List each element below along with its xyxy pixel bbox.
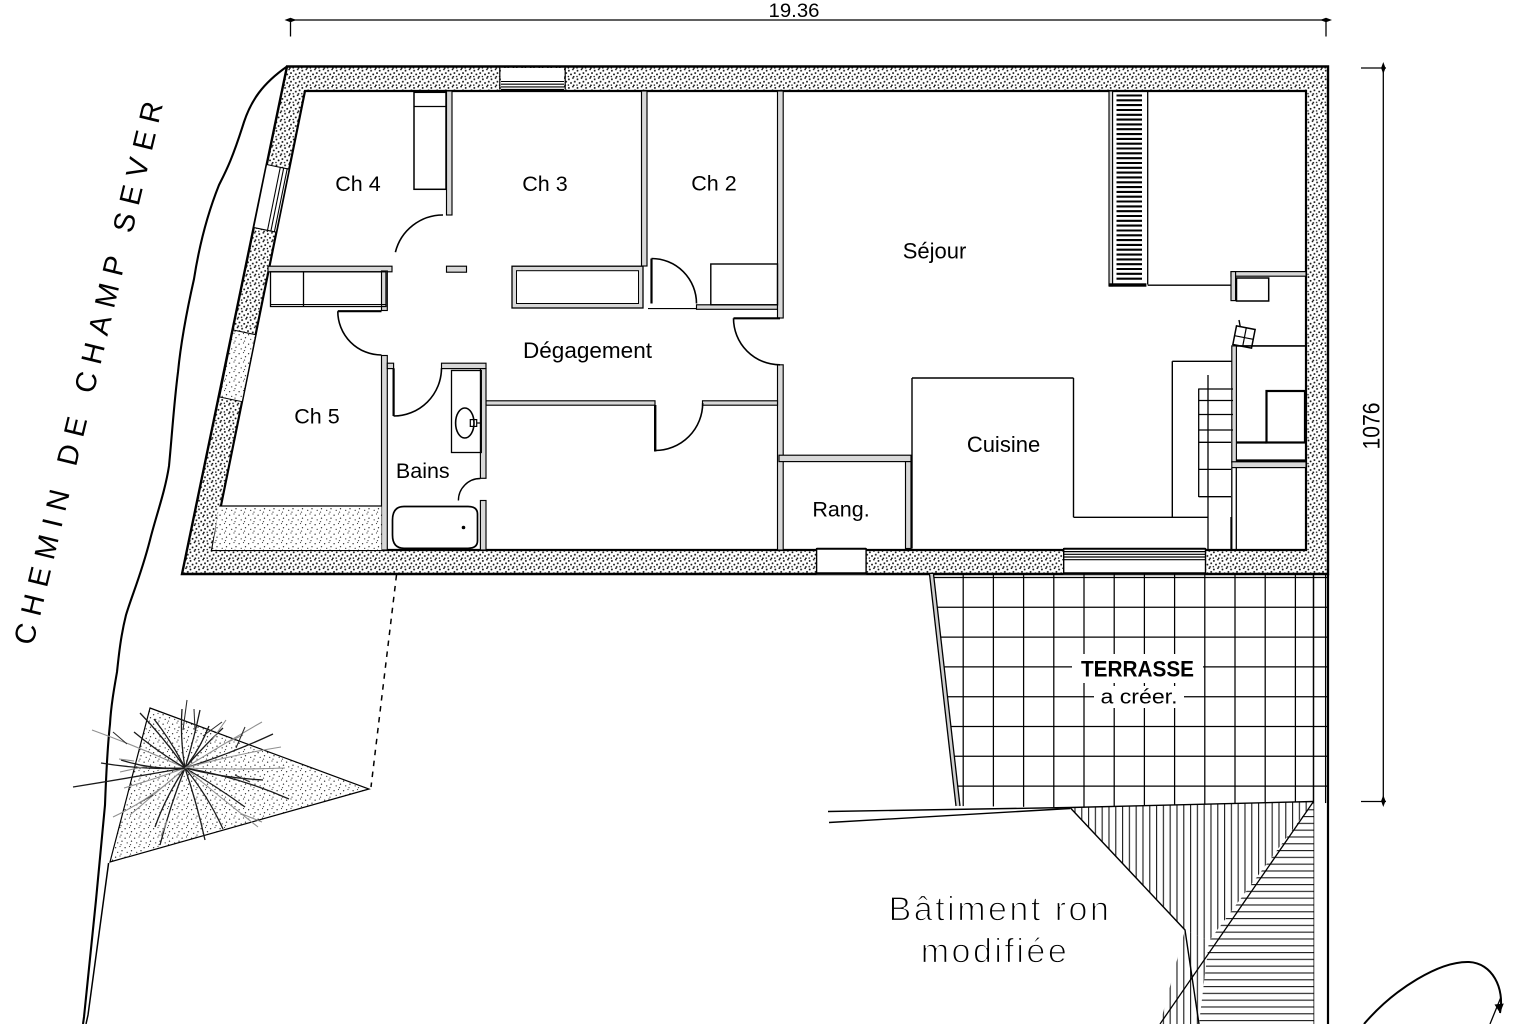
svg-text:Ch 2: Ch 2	[691, 172, 736, 196]
svg-text:19.36: 19.36	[769, 0, 820, 22]
svg-text:modifiée: modifiée	[921, 933, 1070, 971]
svg-text:1076: 1076	[1359, 403, 1386, 450]
svg-text:Bains: Bains	[396, 459, 450, 483]
svg-text:Séjour: Séjour	[903, 239, 967, 264]
svg-text:Ch 3: Ch 3	[522, 172, 567, 196]
svg-text:TERRASSE: TERRASSE	[1081, 657, 1194, 682]
svg-text:Cuisine: Cuisine	[967, 432, 1040, 457]
svg-text:Bâtiment ron: Bâtiment ron	[889, 891, 1112, 929]
svg-text:Ch 4: Ch 4	[335, 172, 380, 196]
svg-text:a créer.: a créer.	[1101, 687, 1178, 709]
svg-text:Ch 5: Ch 5	[294, 405, 339, 429]
svg-text:Dégagement: Dégagement	[523, 338, 653, 363]
svg-text:Rang.: Rang.	[812, 498, 869, 522]
